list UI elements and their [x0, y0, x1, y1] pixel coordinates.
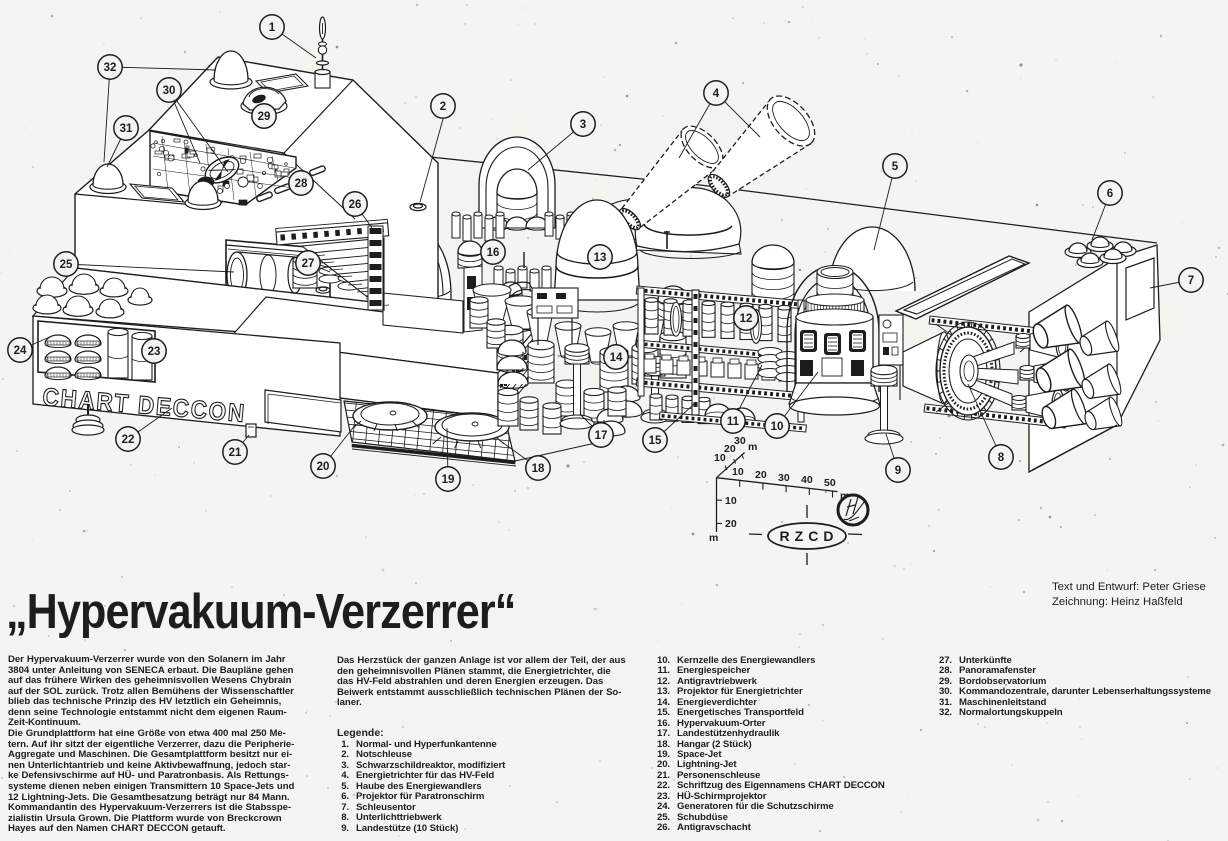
svg-text:12: 12 [740, 313, 753, 325]
svg-text:13: 13 [594, 252, 607, 264]
svg-text:30: 30 [734, 435, 746, 447]
svg-text:m: m [748, 441, 757, 453]
svg-text:4: 4 [713, 88, 720, 100]
svg-text:20: 20 [755, 469, 767, 481]
svg-text:17: 17 [595, 430, 608, 442]
svg-text:19: 19 [442, 474, 455, 486]
svg-text:30: 30 [778, 472, 790, 484]
svg-text:m: m [709, 532, 718, 544]
svg-text:11: 11 [727, 416, 740, 428]
svg-text:2: 2 [440, 101, 446, 113]
svg-text:23: 23 [148, 346, 161, 358]
svg-text:24: 24 [14, 345, 27, 357]
svg-text:10: 10 [725, 495, 737, 507]
svg-text:6: 6 [1107, 188, 1113, 200]
svg-text:21: 21 [229, 447, 242, 459]
svg-text:31: 31 [120, 123, 133, 135]
svg-text:7: 7 [1188, 275, 1194, 287]
svg-text:29: 29 [258, 111, 271, 123]
svg-text:28: 28 [295, 178, 308, 190]
svg-text:10: 10 [732, 466, 744, 478]
svg-text:18: 18 [532, 463, 545, 475]
svg-text:15: 15 [649, 435, 662, 447]
svg-text:20: 20 [317, 461, 330, 473]
svg-text:10: 10 [771, 421, 784, 433]
svg-text:16: 16 [487, 247, 500, 259]
svg-text:22: 22 [122, 434, 135, 446]
svg-text:9: 9 [895, 465, 901, 477]
svg-text:50: 50 [824, 477, 836, 489]
svg-text:1: 1 [269, 22, 276, 34]
svg-text:3: 3 [580, 119, 586, 131]
svg-text:40: 40 [801, 474, 813, 486]
svg-text:30: 30 [163, 85, 176, 97]
svg-text:RZCD: RZCD [780, 528, 839, 544]
svg-text:32: 32 [104, 62, 117, 74]
svg-text:20: 20 [725, 518, 737, 530]
svg-text:5: 5 [892, 161, 899, 173]
svg-text:14: 14 [610, 352, 623, 364]
svg-text:26: 26 [349, 199, 362, 211]
svg-text:25: 25 [60, 259, 73, 271]
svg-text:8: 8 [998, 452, 1005, 464]
svg-text:27: 27 [302, 258, 315, 270]
